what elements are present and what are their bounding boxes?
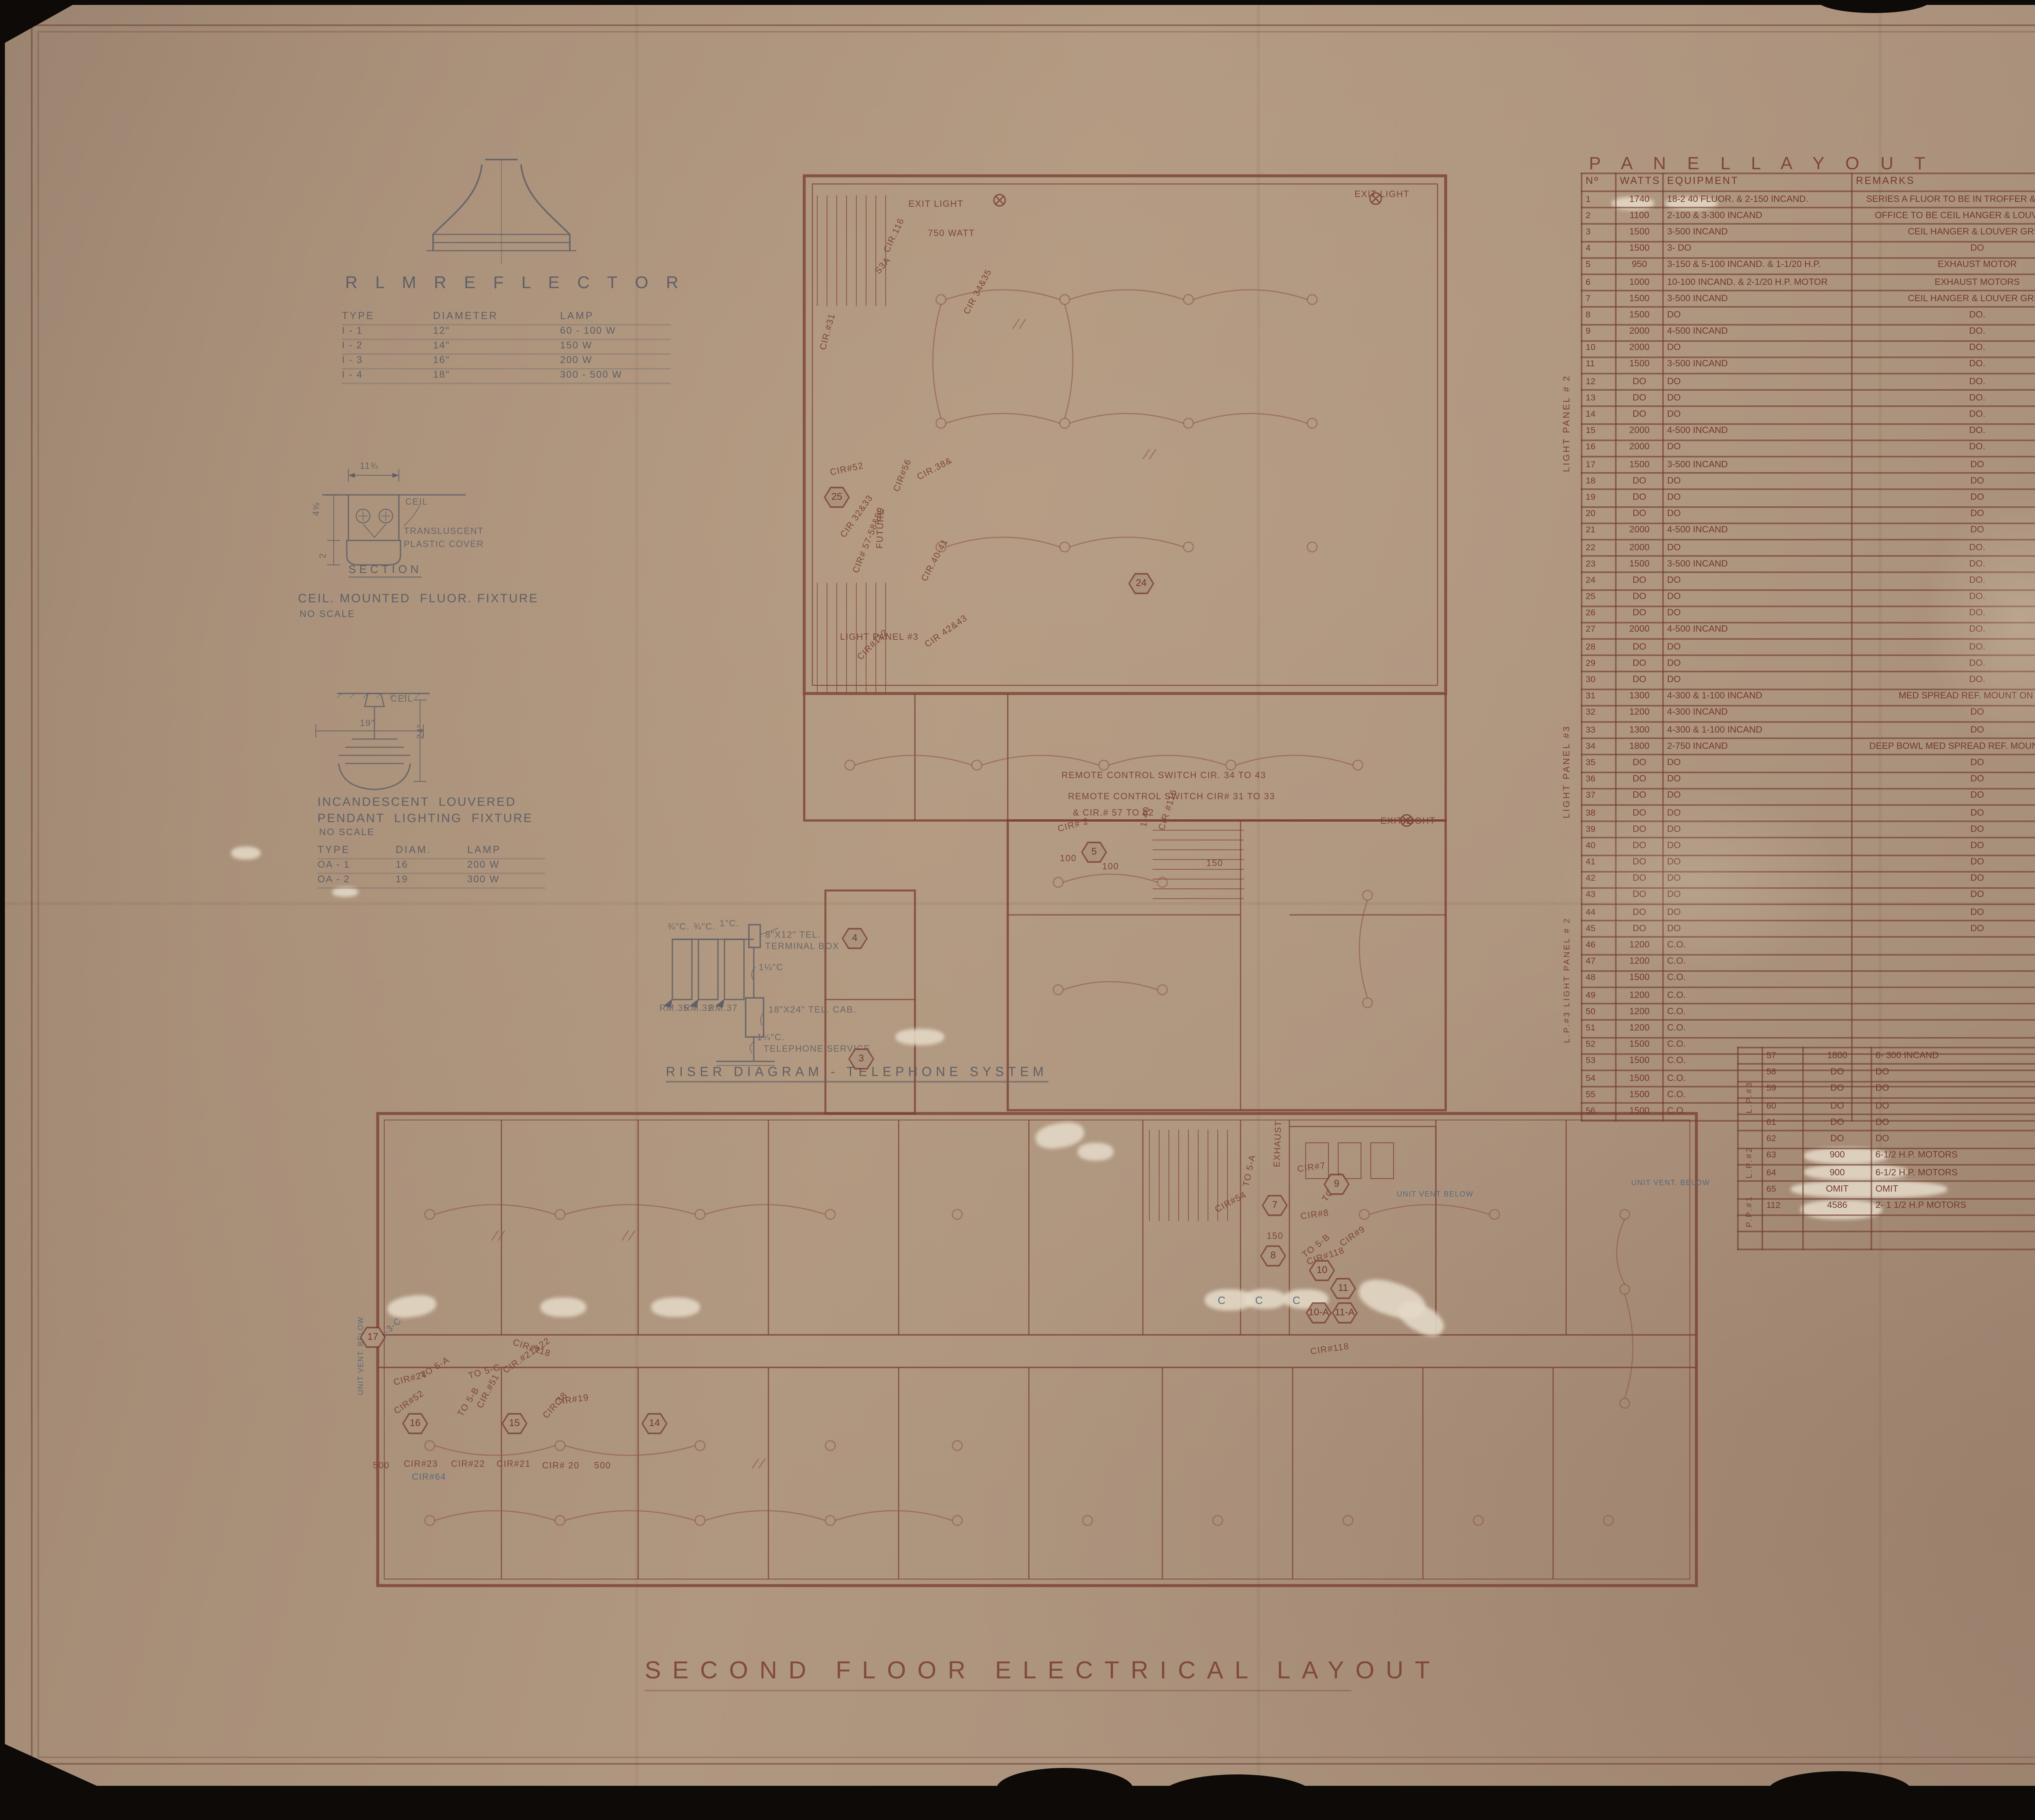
- panel-lower-row: [1738, 1232, 2035, 1249]
- group-label-lp3: L.P.#3: [1745, 1081, 1755, 1113]
- drawing-main-title: SECOND FLOOR ELECTRICAL LAYOUT: [645, 1657, 1351, 1691]
- panel-row: 2 1100 2-100 & 3-300 INCAND OFFICE TO BE…: [1582, 208, 2035, 225]
- panel-row: 14 DO DO DO.: [1582, 407, 2035, 424]
- plan-label: UNIT VENT. BELOW: [357, 1317, 366, 1395]
- plan-label: 2: [319, 553, 329, 558]
- fluor-fixture-title: CEIL. MOUNTED FLUOR. FIXTURE: [298, 591, 538, 606]
- plan-label: 150: [1267, 1232, 1284, 1242]
- plan-label: EXIT LIGHT: [1354, 190, 1409, 200]
- panel-row: 51 1200 C.O.: [1582, 1021, 2035, 1037]
- col-watts: WATTS: [1616, 173, 1663, 191]
- panel-header-row: Nº WATTS EQUIPMENT REMARKS BRK.: [1582, 173, 2035, 191]
- plan-label: 19": [360, 720, 375, 729]
- plan-label: EXIT LIGHT: [1381, 817, 1435, 827]
- plan-label: 100: [1060, 855, 1077, 864]
- drawing-sheet: R L M R E F L E C T O R TYPE DIAMETER LA…: [3, 3, 2035, 1787]
- rlm-col-diameter: DIAMETER: [433, 309, 560, 325]
- plan-label: REMOTE CONTROL SWITCH CIR. 34 TO 43: [1061, 772, 1266, 781]
- panel-lower-row: 64 900 6-1/2 H.P. MOTORS UNIT VENTILATOR…: [1738, 1165, 2035, 1181]
- panel-lower-row: 65 OMIT OMIT 15 AMP: [1738, 1182, 2035, 1199]
- panel-row: 12 DO DO DO.: [1582, 374, 2035, 390]
- plan-label: CIR#23: [404, 1460, 438, 1470]
- panel-row: 5 950 3-150 & 5-100 INCAND. & 1-1/20 H.P…: [1582, 258, 2035, 274]
- panel-lower-row: 112 4586 2- 1 1/2 H.P MOTORS UNIT VENTIL…: [1738, 1199, 2035, 1215]
- col-equipment: EQUIPMENT: [1663, 173, 1852, 191]
- panel-row: 16 2000 DO DO. 20 AMP: [1582, 440, 2035, 457]
- rlm-row: I - 418"300 - 500 W: [342, 369, 671, 383]
- panel-row: 9 2000 4-500 INCAND DO. 20 AMP: [1582, 324, 2035, 341]
- plan-label: C: [1255, 1297, 1263, 1307]
- panel-row: 11 1500 3-500 INCAND DO.: [1582, 357, 2035, 374]
- panel-lower-row: 62 DO DO DO: [1738, 1131, 2035, 1148]
- plan-label: CIR#64: [412, 1473, 446, 1483]
- plan-label: TERMINAL BOX: [765, 943, 839, 952]
- panel-lower-row: [1738, 1215, 2035, 1232]
- group-label-pp1: P.P.#1: [1745, 1195, 1755, 1227]
- plan-label: TRANSLUSCENT: [404, 527, 484, 537]
- pendant-col-lamp: LAMP: [467, 843, 545, 859]
- panel-row: 17 1500 3-500 INCAND DO: [1582, 457, 2035, 473]
- rlm-row: I - 316"200 W: [342, 354, 671, 369]
- plan-label: FUTURE: [876, 508, 887, 549]
- plan-label: 500: [594, 1462, 611, 1472]
- pendant-row: OA - 116200 W: [317, 859, 545, 873]
- paper-smudge: [1550, 785, 1843, 980]
- panel-lower-row: 58 DO DO LIGHTS ABOVE STAGE OPG.: [1738, 1064, 2035, 1081]
- plan-label: 750 WATT: [928, 230, 975, 239]
- plan-label: CEIL: [405, 498, 428, 508]
- plan-label: 100: [1102, 863, 1119, 873]
- plan-label: ¾"C.: [667, 923, 690, 933]
- panel-row: 7 1500 3-500 INCAND CEIL HANGER & LOUVER…: [1582, 291, 2035, 308]
- plan-label: 4⅝: [313, 502, 322, 516]
- panel-row: 10 2000 DO DO. 20 AMP: [1582, 341, 2035, 357]
- plan-label: UNIT VENT. BELOW: [1631, 1179, 1710, 1188]
- group-label-lp2: L.P.#2: [1745, 1146, 1755, 1178]
- panel-row: 35 DO DO DO: [1582, 755, 2035, 772]
- panel-layout-table-lower: 57 1800 6- 300 INCAND PROVIDE CEIL OUTLE…: [1737, 1047, 2035, 1249]
- section-label: SECTION: [348, 565, 422, 578]
- col-remarks: REMARKS: [1852, 173, 2035, 191]
- plan-label: PLASTIC COVER: [404, 540, 484, 550]
- paper-tear: [996, 1768, 1133, 1810]
- panel-row: 6 1000 10-100 INCAND. & 2-1/20 H.P. MOTO…: [1582, 274, 2035, 291]
- plan-label: 1"C.: [720, 920, 740, 930]
- panel-row: 15 2000 4-500 INCAND DO. 20 AMP: [1582, 424, 2035, 440]
- pendant-table: TYPE DIAM. LAMP OA - 116200 W OA - 21930…: [317, 843, 545, 889]
- group-label-light-panel-2: LIGHT PANEL # 2: [1563, 374, 1573, 472]
- col-no: Nº: [1582, 173, 1616, 191]
- plan-label: EXHAUST: [1273, 1120, 1284, 1168]
- plan-label: 150: [1206, 860, 1223, 869]
- panel-row: 49 1200 C.O.: [1582, 987, 2035, 1004]
- pendant-col-diam: DIAM.: [396, 843, 467, 859]
- paper-smudge: [1924, 492, 2035, 752]
- pendant-title-line1: INCANDESCENT LOUVERED: [317, 794, 516, 809]
- pendant-col-type: TYPE: [317, 843, 396, 859]
- plan-label: UNIT VENT BELOW: [1397, 1190, 1473, 1200]
- paper-tear: [1768, 1771, 1911, 1810]
- panel-lower-row: 59 DO DO & REMOTE CONTROL.: [1738, 1081, 2035, 1098]
- plan-label: CIR# 20: [542, 1462, 580, 1472]
- panel-layout-title: P A N E L L A Y O U T: [1589, 155, 1933, 174]
- panel-row: 8 1500 DO DO.: [1582, 307, 2035, 324]
- photo-edge: [0, 0, 5, 1791]
- panel-lower-row: 61 DO DO DO: [1738, 1115, 2035, 1131]
- pendant-row: OA - 219300 W: [317, 873, 545, 888]
- panel-row: 50 1200 C.O.: [1582, 1004, 2035, 1021]
- plan-label: 11¾: [360, 462, 379, 472]
- plan-label: 24": [417, 724, 427, 739]
- plan-label: 8"X12" TEL.: [765, 931, 821, 941]
- panel-lower-row: 60 DO DO DO: [1738, 1098, 2035, 1115]
- rlm-col-type: TYPE: [342, 309, 433, 325]
- panel-row: 4 1500 3- DO DO: [1582, 241, 2035, 258]
- plan-label: 500: [373, 1462, 390, 1472]
- rlm-reflector-title: R L M R E F L E C T O R: [345, 273, 685, 293]
- panel-row: 3 1500 3-500 INCAND CEIL HANGER & LOUVER…: [1582, 225, 2035, 241]
- pendant-title-line2: PENDANT LIGHTING FIXTURE: [317, 811, 533, 825]
- paper-tear: [1159, 1774, 1315, 1820]
- plan-label: CIR#21: [497, 1460, 531, 1470]
- panel-row: 1 1740 18-2 40 FLUOR. & 2-150 INCAND. SE…: [1582, 191, 2035, 208]
- plan-label: 1¼"C.: [757, 1034, 785, 1043]
- plan-label: CIR#22: [451, 1460, 485, 1470]
- fluor-no-scale: NO SCALE: [300, 610, 355, 620]
- plan-label: C: [1293, 1297, 1301, 1307]
- panel-row: 18 DO DO DO: [1582, 473, 2035, 490]
- rlm-col-lamp: LAMP: [560, 309, 671, 325]
- plan-label: ¾"C.: [694, 923, 716, 933]
- panel-row: 13 DO DO DO.: [1582, 390, 2035, 407]
- rlm-row: I - 214"150 W: [342, 339, 671, 354]
- rlm-reflector-table: TYPE DIAMETER LAMP I - 112"60 - 100 W I …: [342, 309, 671, 384]
- plan-label: EXIT LIGHT: [908, 200, 963, 210]
- photo-edge: [0, 0, 2035, 5]
- panel-lower-row: 57 1800 6- 300 INCAND PROVIDE CEIL OUTLE…: [1738, 1048, 2035, 1064]
- plan-label: 18"X24" TEL. CAB.: [768, 1006, 856, 1016]
- plan-label: RM.37: [708, 1004, 738, 1014]
- photo-stage: R L M R E F L E C T O R TYPE DIAMETER LA…: [0, 0, 2035, 1791]
- plan-label: 1¼"C: [759, 964, 783, 973]
- rlm-row: I - 112"60 - 100 W: [342, 325, 671, 339]
- panel-lower-row: 63 900 6-1/2 H.P. MOTORS UNIT VENTILATOR…: [1738, 1148, 2035, 1165]
- pendant-no-scale: NO SCALE: [319, 829, 375, 838]
- plan-label: CEIL: [391, 695, 413, 705]
- plan-label: C: [1218, 1297, 1226, 1307]
